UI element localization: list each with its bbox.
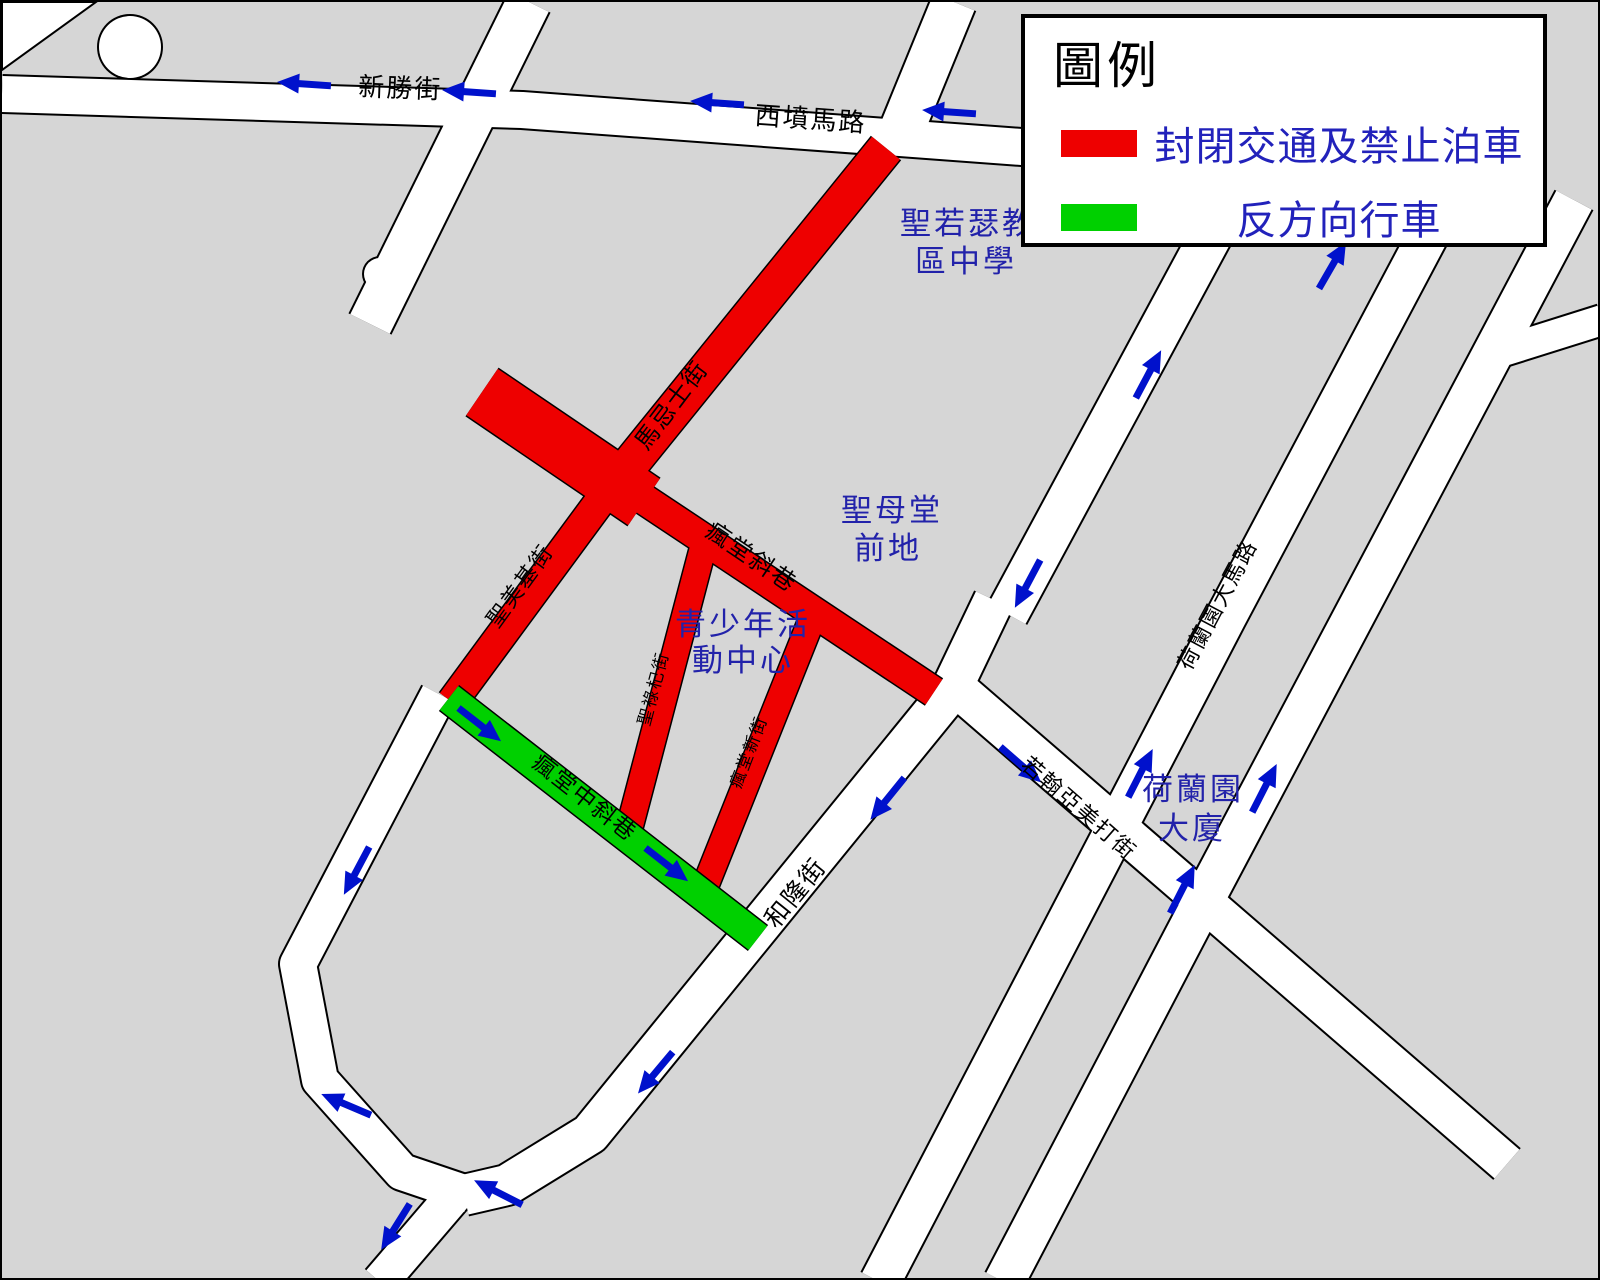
place-label-st-lazarus-square: 聖母堂: [841, 493, 943, 528]
reverse-road-label: 反方向行車: [1147, 188, 1531, 246]
legend-item-reverse: 反方向行車: [1061, 188, 1531, 246]
place-label-horta-e-costa-building: 大廈: [1158, 811, 1226, 846]
legend: 圖例 封閉交通及禁止泊車 反方向行車: [1021, 14, 1547, 247]
place-label-horta-e-costa-building: 荷蘭園: [1142, 772, 1244, 807]
roundabout: [364, 258, 396, 290]
place-label-youth-activity-centre: 動中心: [692, 643, 794, 678]
place-label-youth-activity-centre: 青少年活: [675, 607, 811, 642]
legend-title: 圖例: [1053, 26, 1543, 98]
place-label-st-lazarus-square: 前地: [854, 531, 922, 566]
legend-item-closed: 封閉交通及禁止泊車: [1061, 114, 1531, 172]
roundabout: [99, 16, 161, 78]
traffic-map-page: 新勝街西墳馬路馬忌士街聖美基街瘋堂斜巷聖祿杞街瘋堂新街瘋堂中斜巷和隆街若翰亞美打…: [0, 0, 1600, 1280]
closed-road-swatch: [1061, 130, 1137, 157]
closed-road-label: 封閉交通及禁止泊車: [1147, 114, 1531, 172]
street-label: 新勝街: [358, 73, 443, 105]
reverse-road-swatch: [1061, 204, 1137, 231]
place-label-sao-jose-school: 區中學: [915, 244, 1017, 279]
place-label-sao-jose-school: 聖若瑟教: [900, 206, 1036, 241]
